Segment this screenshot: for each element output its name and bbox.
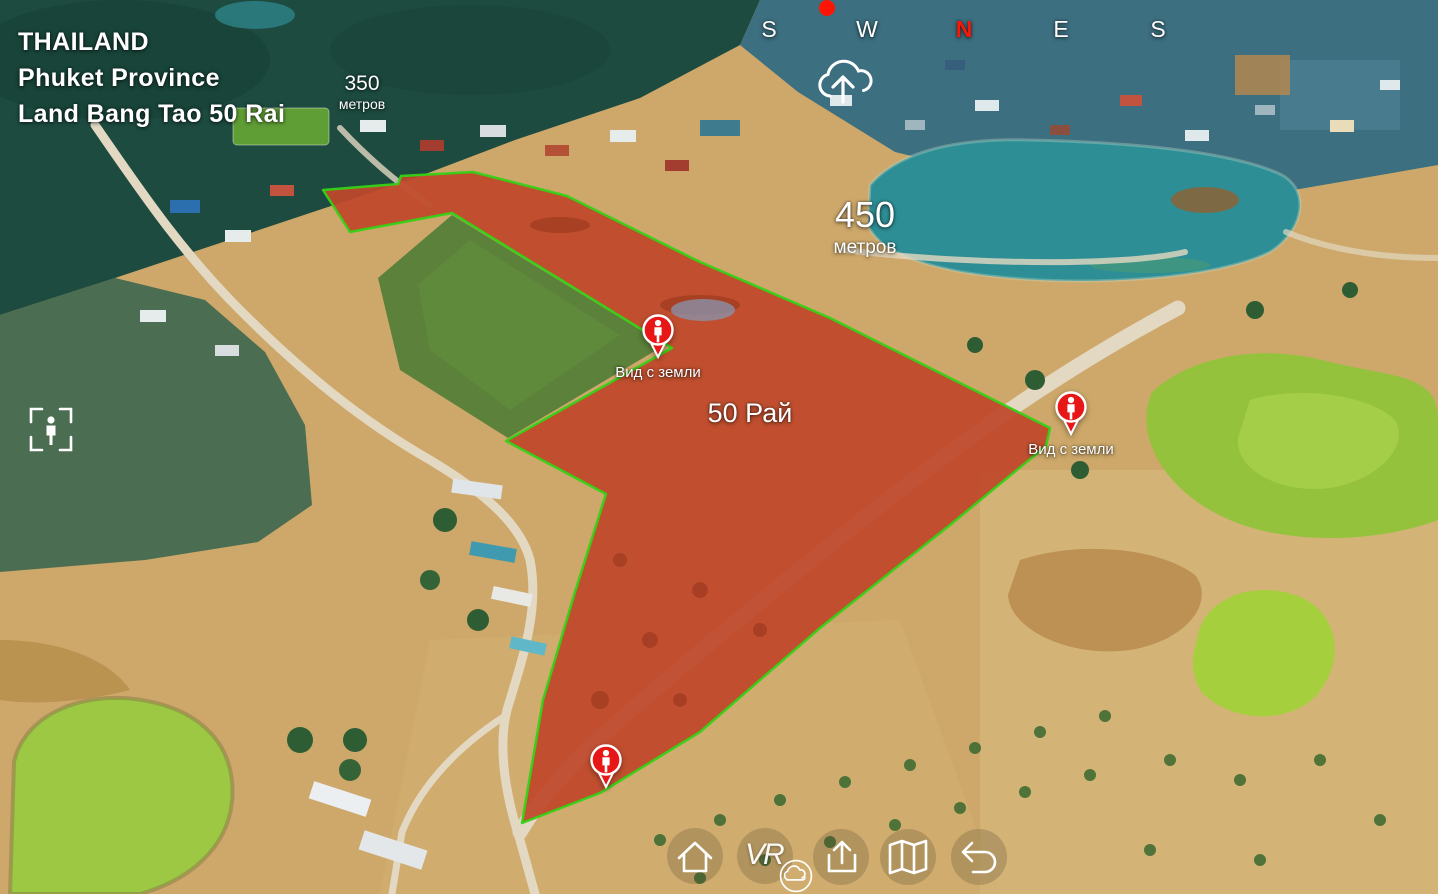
distance-value: 350 — [322, 72, 402, 96]
ground-view-marker-right[interactable]: Вид с земли — [1049, 391, 1093, 441]
cloud-icon — [768, 858, 824, 894]
upload-icon — [822, 837, 862, 877]
ground-view-marker-center[interactable]: Вид с земли — [636, 314, 680, 364]
undo-button[interactable] — [957, 838, 1001, 878]
ground-view-label: Вид с земли — [1028, 441, 1113, 458]
distance-label-350: 350 метров — [322, 72, 402, 112]
ground-view-marker-bottom[interactable] — [584, 744, 628, 794]
plot-title: Land Bang Tao 50 Rai — [18, 96, 285, 132]
person-pin-icon — [644, 316, 673, 358]
compass-letter-n: N — [951, 16, 977, 43]
compass-letter-e: E — [1048, 16, 1074, 43]
distance-label-450: 450 метров — [800, 194, 930, 259]
country-label: THAILAND — [18, 24, 285, 60]
home-button[interactable] — [675, 838, 715, 876]
compass-letter-s1: S — [756, 16, 782, 43]
aerial-photo-background — [0, 0, 1438, 894]
plot-area-label: 50 Рай — [690, 398, 810, 429]
home-icon — [675, 838, 715, 876]
cloud-360-button[interactable] — [768, 858, 824, 894]
upload-button[interactable] — [822, 837, 862, 877]
ground-view-frame-button[interactable] — [26, 406, 76, 454]
distance-value: 450 — [800, 194, 930, 236]
person-pin-icon — [1057, 393, 1086, 435]
person-pin-icon — [592, 746, 621, 788]
map-button[interactable] — [886, 838, 930, 876]
compass-letter-w: W — [854, 16, 880, 43]
map-icon — [886, 838, 930, 876]
distance-unit: метров — [322, 96, 402, 112]
undo-icon — [957, 838, 1001, 878]
location-header: THAILAND Phuket Province Land Bang Tao 5… — [18, 24, 285, 132]
distance-unit: метров — [800, 237, 930, 259]
cloud-upload-button[interactable] — [812, 52, 878, 112]
ground-view-label: Вид с земли — [615, 364, 700, 381]
person-in-frame-icon — [26, 406, 76, 454]
compass-indicator-dot — [819, 0, 835, 16]
plot-pond-spot — [671, 299, 735, 321]
land-listing-viewer: THAILAND Phuket Province Land Bang Tao 5… — [0, 0, 1438, 894]
province-label: Phuket Province — [18, 60, 285, 96]
cloud-upload-icon — [812, 52, 878, 112]
compass-letter-s2: S — [1145, 16, 1171, 43]
